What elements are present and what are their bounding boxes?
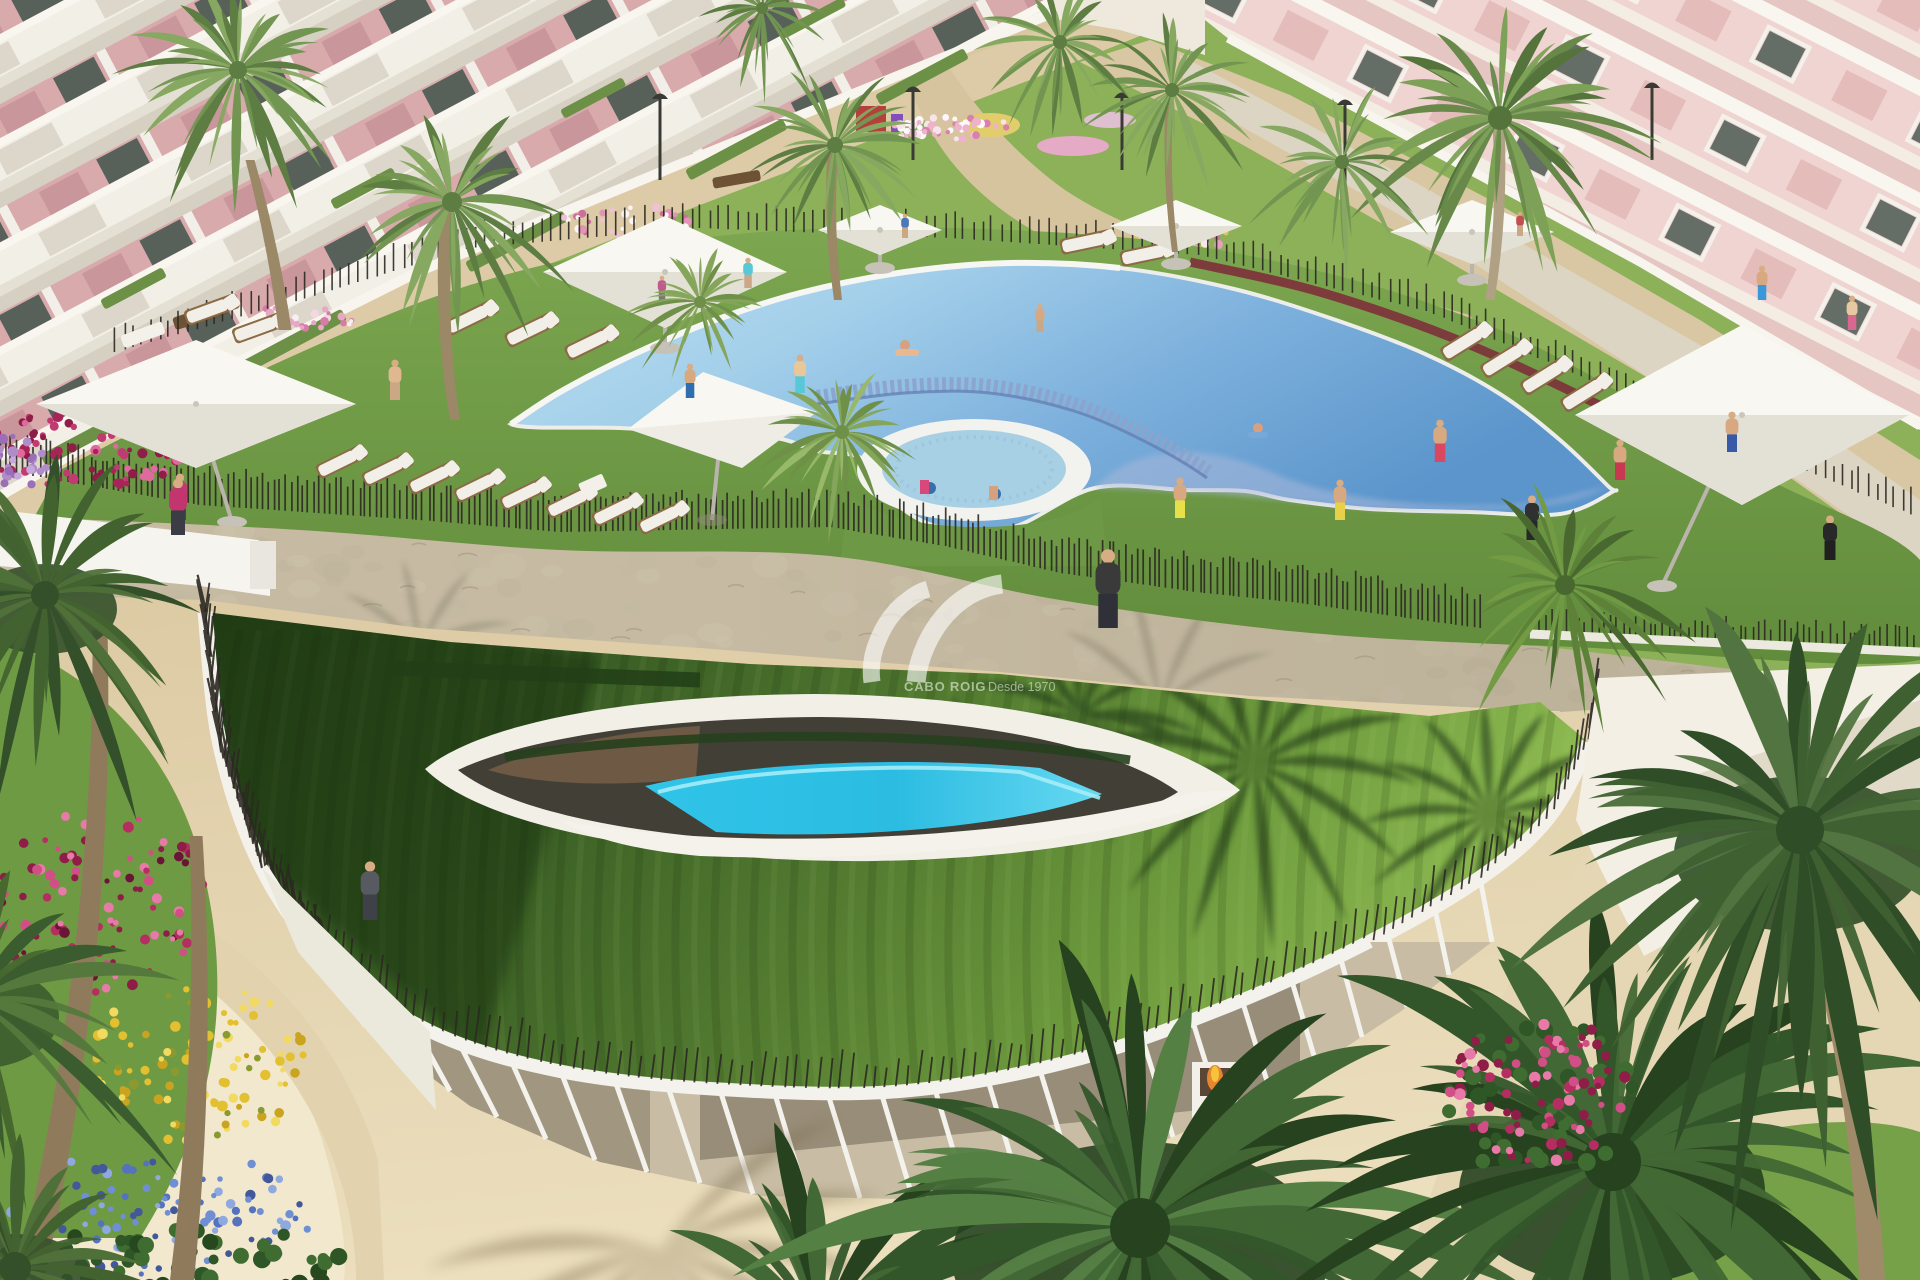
svg-text:Desde 1970: Desde 1970 bbox=[988, 680, 1055, 694]
svg-text:CABO ROIG: CABO ROIG bbox=[904, 679, 986, 694]
